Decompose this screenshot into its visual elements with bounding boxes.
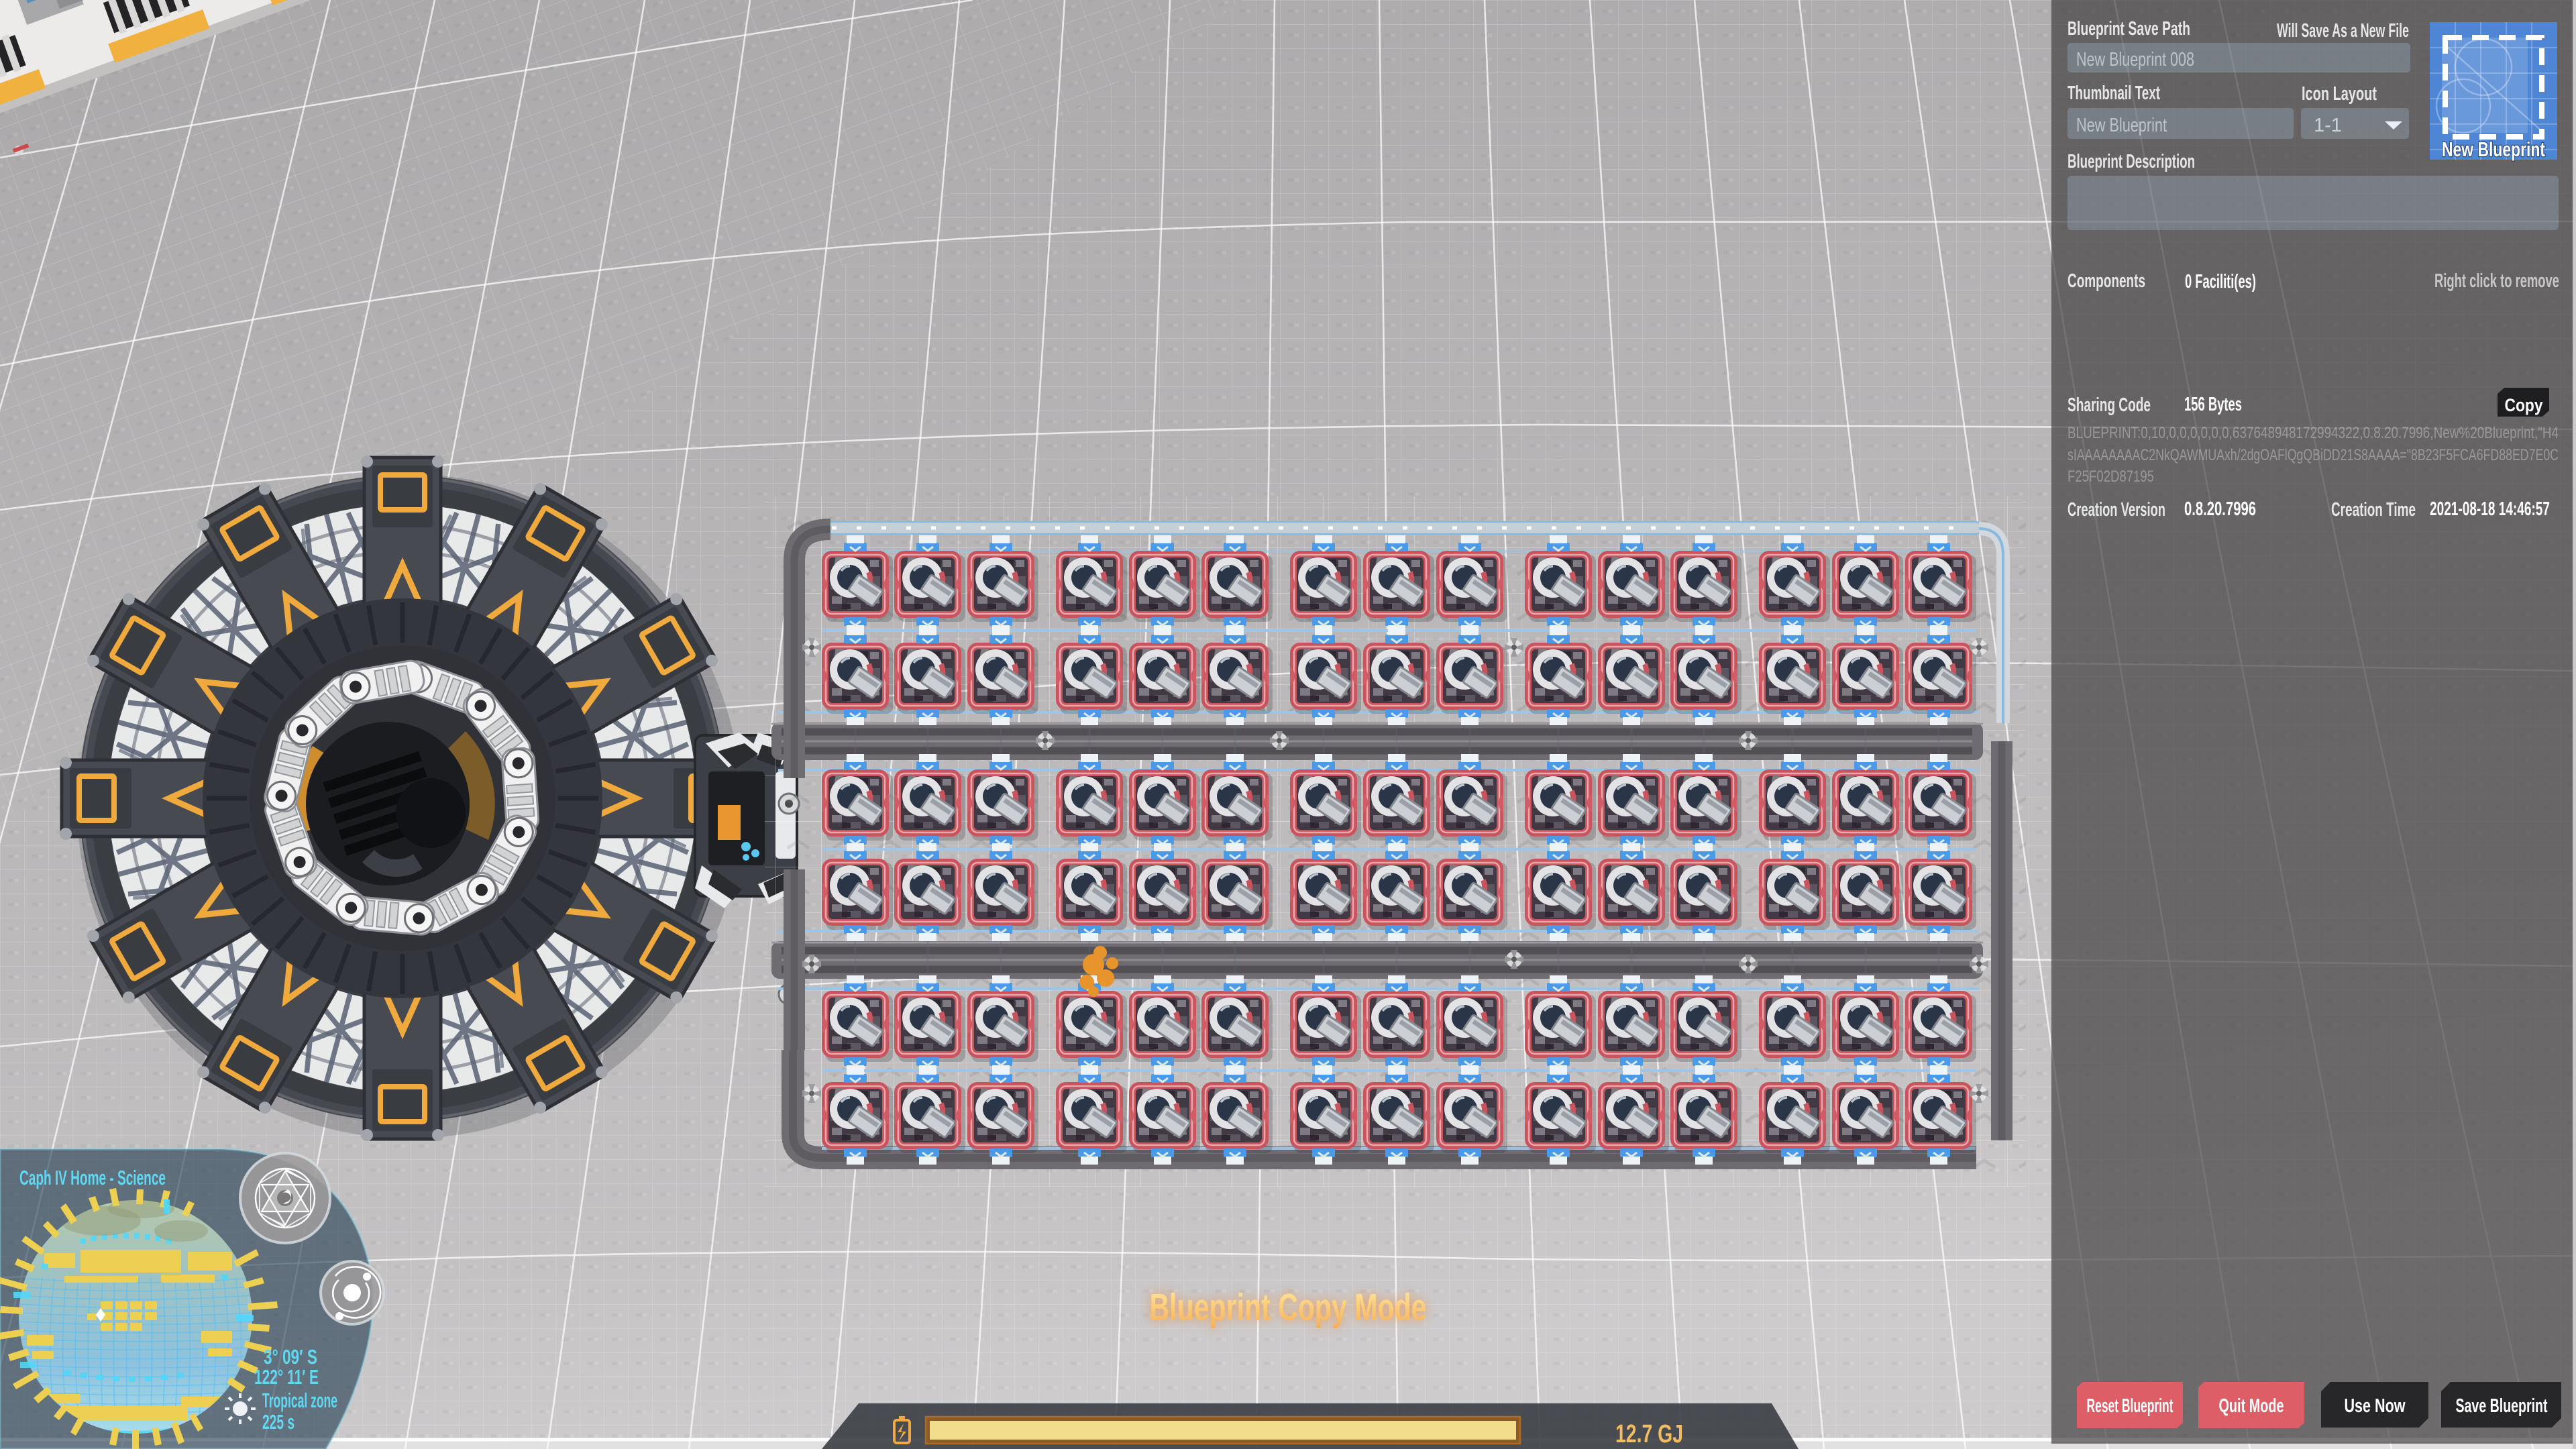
svg-text:2021-08-18 14:46:57: 2021-08-18 14:46:57 — [2430, 498, 2550, 520]
svg-text:Components: Components — [2068, 270, 2145, 292]
svg-text:0.8.20.7996: 0.8.20.7996 — [2184, 498, 2256, 520]
svg-text:F25F02D87195: F25F02D87195 — [2068, 468, 2154, 486]
svg-text:Sharing Code: Sharing Code — [2068, 394, 2151, 416]
svg-text:Thumbnail Text: Thumbnail Text — [2068, 83, 2160, 104]
svg-text:Blueprint Copy Mode: Blueprint Copy Mode — [1150, 1286, 1427, 1329]
svg-text:New Blueprint: New Blueprint — [2442, 138, 2545, 161]
svg-text:Blueprint Save Path: Blueprint Save Path — [2068, 18, 2190, 40]
svg-text:Creation Version: Creation Version — [2068, 499, 2165, 521]
svg-text:Right click to remove: Right click to remove — [2434, 270, 2559, 292]
svg-text:Use Now: Use Now — [2345, 1395, 2406, 1417]
svg-text:Creation Time: Creation Time — [2331, 499, 2416, 521]
svg-text:Blueprint Description: Blueprint Description — [2068, 151, 2195, 172]
svg-text:Save Blueprint: Save Blueprint — [2456, 1395, 2548, 1417]
svg-text:Caph IV Home - Science: Caph IV Home - Science — [19, 1166, 166, 1189]
svg-text:Reset Blueprint: Reset Blueprint — [2087, 1395, 2173, 1417]
svg-text:12.7 GJ: 12.7 GJ — [1615, 1420, 1683, 1448]
svg-text:Will Save As a New File: Will Save As a New File — [2277, 20, 2409, 42]
svg-text:Copy: Copy — [2505, 395, 2543, 415]
svg-text:BLUEPRINT:0,10,0,0,0,0,0,0,637: BLUEPRINT:0,10,0,0,0,0,0,0,6376489481729… — [2068, 424, 2559, 442]
svg-text:New Blueprint: New Blueprint — [2076, 115, 2167, 136]
svg-text:sIAAAAAAAAC2NkQAWMUAxh/2dgOAFl: sIAAAAAAAAC2NkQAWMUAxh/2dgOAFlQgQBiDD21S… — [2068, 446, 2559, 464]
svg-text:New Blueprint 008: New Blueprint 008 — [2076, 49, 2194, 70]
svg-text:122° 11′ E: 122° 11′ E — [254, 1365, 319, 1389]
svg-text:Icon Layout: Icon Layout — [2302, 83, 2377, 105]
svg-text:1-1: 1-1 — [2314, 115, 2342, 136]
svg-text:Tropical zone: Tropical zone — [262, 1389, 337, 1412]
svg-text:156 Bytes: 156 Bytes — [2184, 394, 2242, 415]
svg-text:225 s: 225 s — [262, 1410, 294, 1434]
svg-text:Quit Mode: Quit Mode — [2219, 1395, 2284, 1417]
svg-text:0 Faciliti(es): 0 Faciliti(es) — [2185, 271, 2256, 292]
